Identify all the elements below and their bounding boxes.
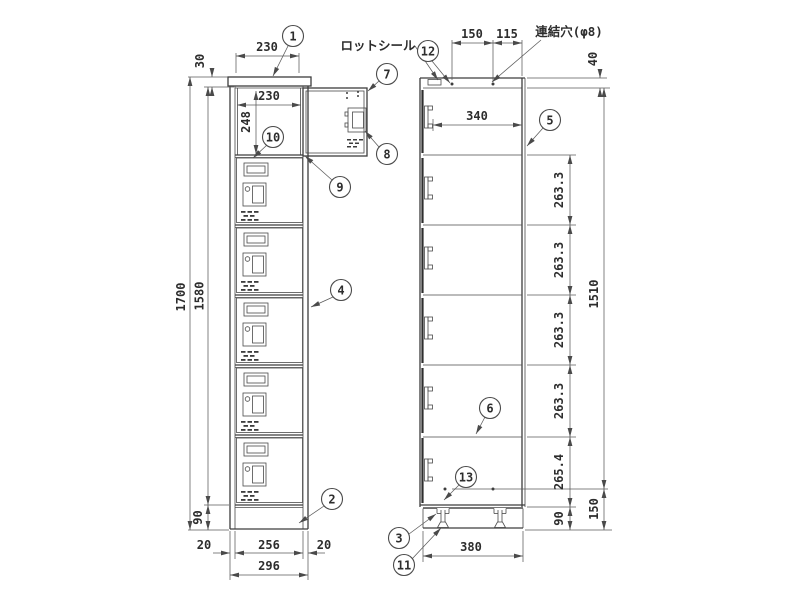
svg-text:10: 10 [266,131,280,145]
locker-door [237,228,303,293]
locker-door [237,368,303,433]
svg-text:9: 9 [336,181,343,195]
svg-text:13: 13 [459,471,473,485]
svg-text:8: 8 [383,148,390,162]
dim-base-span: 150 [587,498,601,520]
lot-seal-label: ロットシール [340,38,416,53]
dim-hole-back: 115 [496,27,518,41]
door-latch [425,247,433,269]
link-hole-dot [451,83,454,86]
locker-door [237,158,303,223]
locker-door [237,298,303,363]
svg-text:3: 3 [395,532,402,546]
svg-text:4: 4 [337,284,344,298]
link-hole-leader [492,40,541,82]
svg-text:12: 12 [421,45,435,59]
door-latch [425,459,433,481]
dim-depth: 340 [466,109,488,123]
dim-comp-3: 263.3 [552,312,566,348]
door-latch [425,317,433,339]
dim-door-width: 256 [258,538,280,552]
svg-text:11: 11 [397,559,411,573]
dim-total-height: 1700 [174,283,188,312]
dim-side-base: 90 [552,511,566,525]
balloon-12: 12 [418,41,451,84]
anchor-hole-dot [492,488,495,491]
balloon-4: 4 [311,280,352,308]
svg-text:5: 5 [546,114,553,128]
dim-base-height: 90 [191,510,205,524]
link-hole-dot [492,83,495,86]
door-latch [425,106,433,128]
dim-comp-2: 263.3 [552,242,566,278]
locker-door [237,438,303,503]
balloon-2: 2 [299,489,343,524]
dim-hole-front: 150 [461,27,483,41]
drawing-canvas: 230 30 1700 1580 90 230 248 20 256 20 29… [0,0,800,600]
dim-body-span: 1510 [587,280,601,309]
balloon-9: 9 [305,156,351,198]
dim-top-margin: 40 [586,52,600,66]
svg-text:2: 2 [328,493,335,507]
dim-inner-height: 248 [239,111,253,133]
dim-comp-4: 263.3 [552,383,566,419]
link-hole-label: 連結穴(φ8) [535,24,603,39]
dimensions-side: 150 115 連結穴(φ8) ロットシール 40 340 263.3 263.… [340,24,612,562]
balloon-6: 6 [476,398,501,435]
balloon-8: 8 [365,131,398,165]
base-legs [420,505,525,528]
dim-body-height: 1580 [193,282,207,311]
dim-bottom-right: 20 [317,538,331,552]
side-view [420,78,608,528]
locker-technical-drawing: 230 30 1700 1580 90 230 248 20 256 20 29… [0,0,800,600]
door-latch [425,387,433,409]
open-door [303,88,367,156]
dim-plate: 30 [193,54,207,68]
dim-top-width: 230 [256,40,278,54]
balloon-5: 5 [527,110,561,147]
front-view [228,77,367,529]
dim-bottom-comp: 265.4 [552,454,566,490]
balloon-10: 10 [253,127,284,159]
lot-seal-tab [428,80,441,86]
balloon-callouts: 1 2 3 4 5 6 7 8 9 10 11 12 13 [253,26,561,576]
dim-comp-1: 263.3 [552,172,566,208]
anchor-hole-dot [444,488,447,491]
dim-inner-width: 230 [258,89,280,103]
top-plate [228,77,311,86]
svg-text:1: 1 [289,30,296,44]
svg-text:7: 7 [383,68,390,82]
door-latch [425,177,433,199]
dim-overall-width: 296 [258,559,280,573]
balloon-13: 13 [444,467,477,501]
dim-base-depth: 380 [460,540,482,554]
svg-text:6: 6 [486,402,493,416]
dim-bottom-left: 20 [197,538,211,552]
balloon-7: 7 [368,64,398,92]
balloon-3: 3 [389,514,437,549]
